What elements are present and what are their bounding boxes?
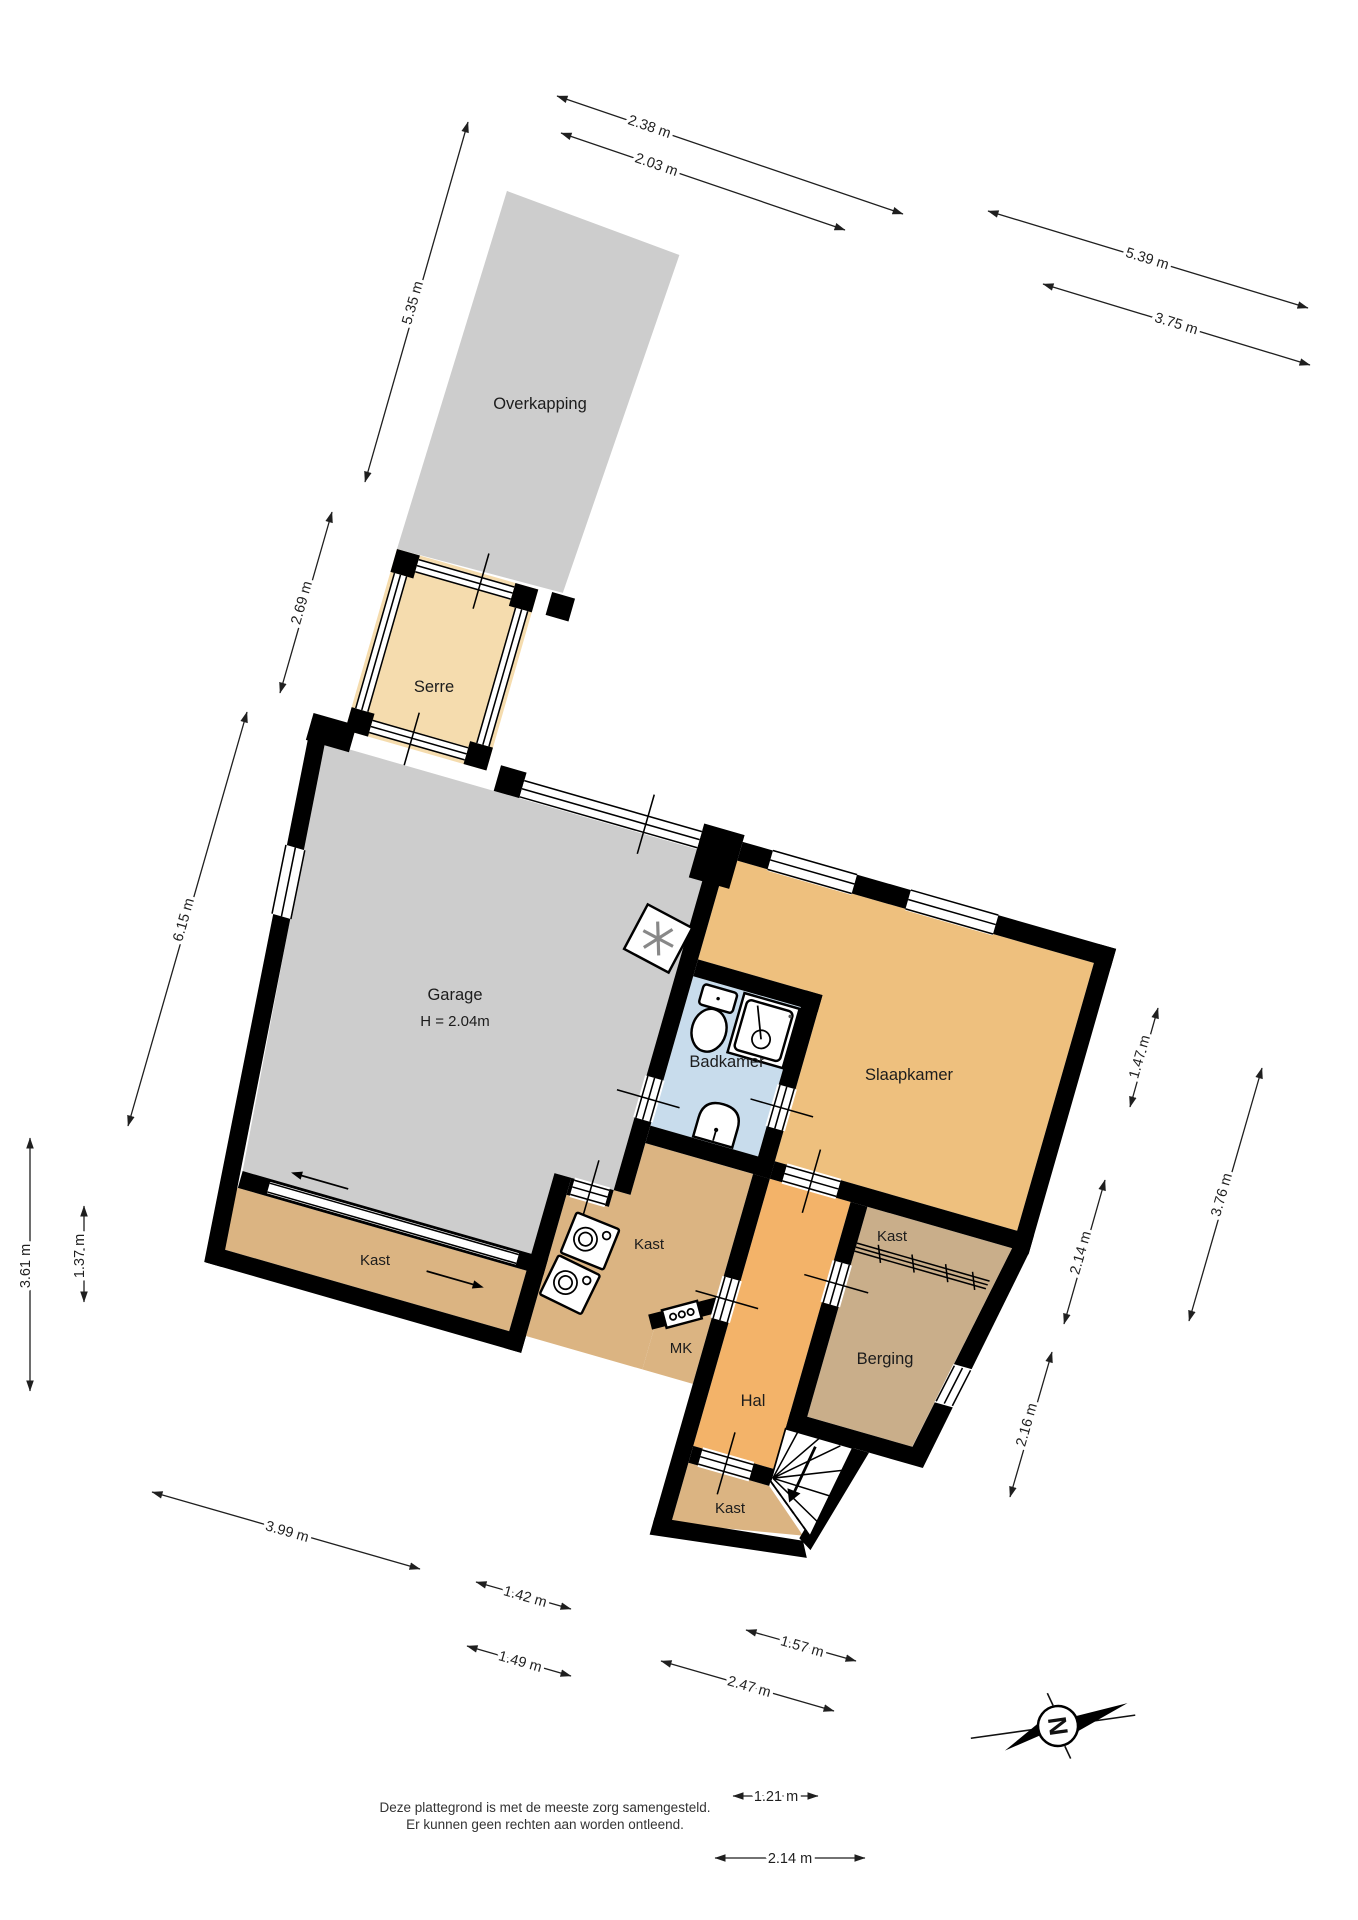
dim-label: 2.47 m [726,1673,773,1701]
dim-label: 3.99 m [264,1518,311,1546]
dim-label: 2.69 m [288,579,316,626]
disclaimer-line-1: Deze plattegrond is met de meeste zorg s… [380,1800,711,1815]
room-label-kast-garage: Kast [360,1252,391,1269]
room-label-overkapping: Overkapping [493,395,587,413]
room-label-hal: Hal [741,1392,766,1410]
dim-right-c: 2.14 m [1064,1180,1105,1324]
dim-label: 1.57 m [779,1633,826,1661]
dim-label: 1.47 m [1126,1033,1154,1080]
dim-bottom-g: 2.14 m [715,1851,865,1867]
dim-label: 2.14 m [1067,1229,1095,1276]
dim-bottom-e: 2.47 m [661,1661,834,1711]
dim-right-d: 2.16 m [1010,1352,1052,1497]
dim-label: 2.38 m [626,112,673,142]
dim-label: 3.76 m [1208,1171,1236,1218]
room-label-serre: Serre [414,678,454,696]
dim-topright-a: 5.39 m [988,211,1308,308]
dim-label: 3.75 m [1153,310,1200,338]
building [121,179,1270,1613]
dim-top-b: 2.03 m [561,133,845,230]
dim-right-a: 1.47 m [1126,1008,1158,1107]
dim-label: 6.15 m [170,896,198,943]
room-label-garage-height: H = 2.04m [420,1013,490,1030]
dim-label: 2.03 m [633,150,680,180]
disclaimer: Deze plattegrond is met de meeste zorg s… [380,1800,711,1832]
disclaimer-line-2: Er kunnen geen rechten aan worden ontlee… [406,1817,684,1832]
room-label-badkamer: Badkamer [689,1053,765,1071]
dim-label: 2.14 m [768,1851,812,1867]
dim-bottom-b: 1.42 m [476,1582,571,1611]
dim-label: 1.37 m [72,1234,88,1278]
dim-top-a: 2.38 m [557,96,903,214]
dim-label: 1.42 m [502,1583,549,1611]
dim-bottom-c: 1.49 m [467,1646,571,1676]
compass-rose: N [966,1681,1140,1771]
dim-bottom-a: 3.99 m [152,1492,420,1569]
room-label-garage: Garage [427,986,482,1004]
dim-left-c: 6.15 m [128,712,247,1126]
floor-plan: Overkapping Serre Garage H = 2.04m Badka… [0,0,1358,1920]
room-label-mk: MK [670,1340,693,1357]
room-label-kast-berging: Kast [877,1228,908,1245]
dim-label: 1.21 m [754,1789,798,1805]
dim-left-b: 2.69 m [280,512,332,693]
room-label-berging: Berging [857,1350,914,1368]
dim-right-b: 3.76 m [1189,1068,1262,1321]
dim-bottom-f: 1.21 m [733,1789,818,1805]
room-label-kast-bijkeuken: Kast [634,1236,665,1253]
dim-label: 5.35 m [399,279,427,326]
dim-label: 5.39 m [1124,245,1171,273]
dim-label: 2.16 m [1013,1401,1041,1448]
room-label-slaapkamer: Slaapkamer [865,1066,954,1084]
room-label-kast-hal: Kast [715,1500,746,1517]
dim-bottom-d: 1.57 m [746,1630,856,1661]
dim-label: 1.49 m [497,1648,544,1676]
dim-left-d: 1.37 m [72,1206,88,1302]
dim-label: 3.61 m [18,1244,34,1288]
floor-plan-page: Overkapping Serre Garage H = 2.04m Badka… [0,0,1358,1920]
dim-left-e: 3.61 m [18,1138,34,1391]
